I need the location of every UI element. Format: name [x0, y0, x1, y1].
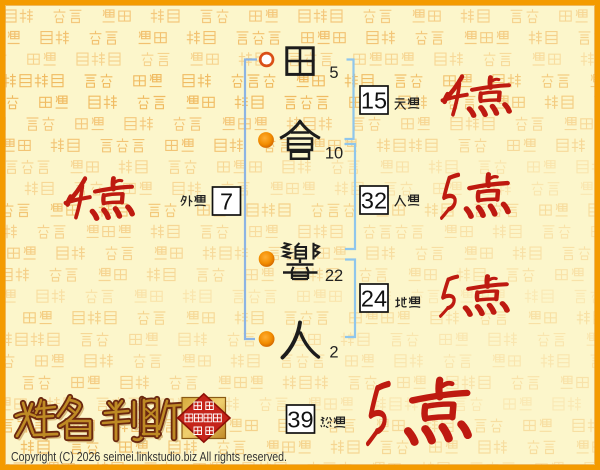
svg-text:Copyright (C) 2026 seimei.link: Copyright (C) 2026 seimei.linkstudio.biz…	[11, 450, 287, 464]
svg-text:32: 32	[361, 188, 387, 214]
svg-text:7: 7	[220, 189, 233, 215]
svg-text:22: 22	[325, 267, 343, 285]
svg-text:5: 5	[329, 64, 338, 82]
svg-text:15: 15	[361, 88, 387, 114]
svg-text:2: 2	[329, 344, 338, 362]
svg-text:10: 10	[325, 145, 343, 163]
svg-text:24: 24	[361, 286, 387, 312]
svg-text:39: 39	[287, 407, 313, 433]
